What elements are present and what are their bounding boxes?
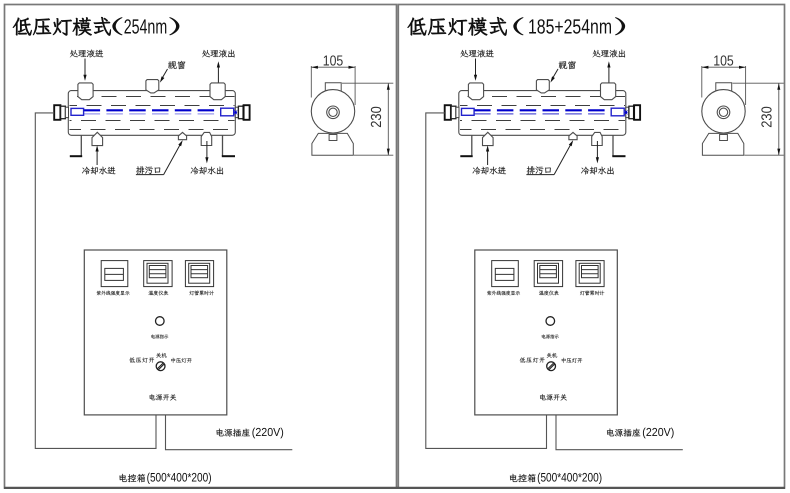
svg-text:(220V): (220V) [252,426,284,439]
svg-text:230: 230 [759,106,775,128]
svg-text:105: 105 [323,53,344,69]
svg-text:254nm: 254nm [124,15,168,38]
svg-text:105: 105 [713,53,734,69]
svg-text:(500*400*200): (500*400*200) [537,470,602,484]
svg-text:(220V): (220V) [642,426,674,439]
svg-text:185+254nm: 185+254nm [528,15,612,38]
svg-text:(500*400*200): (500*400*200) [147,470,212,484]
svg-text:230: 230 [369,106,385,128]
